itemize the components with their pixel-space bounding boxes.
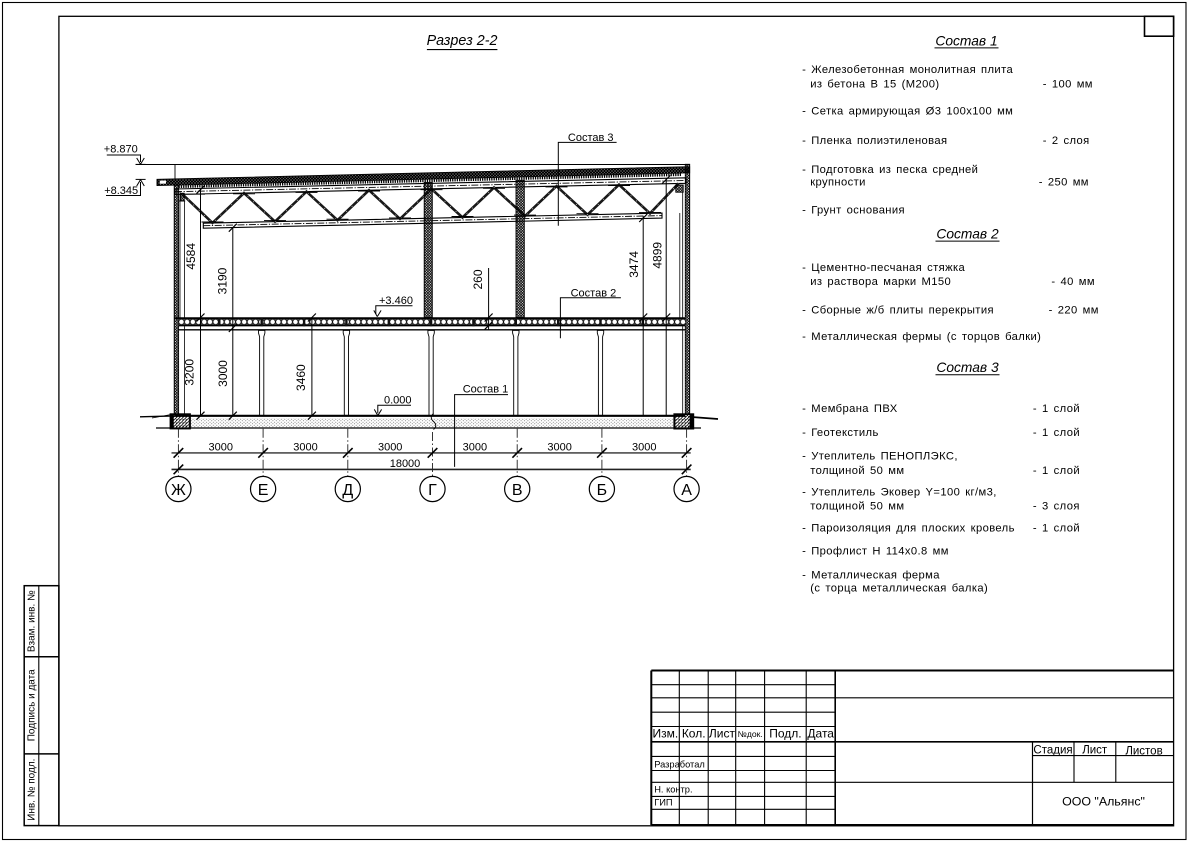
svg-text:- Железобетонная монолитная п: - Железобетонная монолитная плита [802,64,1013,76]
svg-text:- Мембрана ПВХ: - Мембрана ПВХ [802,403,898,415]
svg-text:3190: 3190 [216,267,230,294]
svg-text:- 1 слой: - 1 слой [1033,465,1080,477]
svg-text:№док.: №док. [738,729,763,739]
svg-text:Ж: Ж [171,482,186,499]
svg-text:- 1 слой: - 1 слой [1033,427,1080,439]
svg-text:3000: 3000 [293,441,317,453]
svg-text:- Пароизоляция для плоских кро: - Пароизоляция для плоских кровель [802,523,1015,535]
svg-text:Дата: Дата [807,727,834,741]
svg-text:4584: 4584 [184,243,198,270]
svg-text:Е: Е [258,482,269,499]
svg-text:- Металлическая фермы (с торцо: - Металлическая фермы (с торцов балки) [802,331,1041,343]
svg-text:- Цементно-песчаная стяжка: - Цементно-песчаная стяжка [802,262,965,274]
svg-text:- Профлист Н 114х0.8 мм: - Профлист Н 114х0.8 мм [802,545,949,557]
svg-text:Б: Б [597,482,608,499]
svg-text:3200: 3200 [182,359,196,386]
svg-text:ООО "Альянс": ООО "Альянс" [1062,794,1145,808]
svg-text:- Сборные ж/б плиты перекрытия: - Сборные ж/б плиты перекрытия [802,305,994,317]
svg-text:- Пленка полиэтиленовая: - Пленка полиэтиленовая [802,135,947,147]
svg-text:- Подготовка из песка средней: - Подготовка из песка средней [802,164,978,176]
svg-text:18000: 18000 [390,458,421,470]
svg-text:Состав 2: Состав 2 [936,227,999,242]
svg-text:из раствора марки М150: из раствора марки М150 [810,276,951,288]
svg-text:Состав 1: Состав 1 [935,33,997,48]
svg-text:- 2 слоя: - 2 слоя [1043,135,1090,147]
svg-text:- Металлическая ферма: - Металлическая ферма [802,570,940,582]
svg-text:- 220 мм: - 220 мм [1049,305,1099,317]
svg-text:из бетона В 15 (М200): из бетона В 15 (М200) [810,78,939,90]
svg-text:- Грунт основания: - Грунт основания [802,205,905,217]
svg-text:толщиной 50 мм: толщиной 50 мм [810,501,904,513]
svg-text:- 1 слой: - 1 слой [1033,403,1080,415]
svg-text:3000: 3000 [547,441,571,453]
svg-text:Подпись и дата: Подпись и дата [27,669,38,741]
svg-text:- 3 слоя: - 3 слоя [1033,501,1080,513]
svg-text:Состав 1: Состав 1 [463,384,509,396]
svg-text:- Утеплитель ПЕНОПЛЭКС,: - Утеплитель ПЕНОПЛЭКС, [802,451,958,463]
svg-text:Разработал: Разработал [654,760,705,770]
svg-text:3474: 3474 [627,251,641,278]
svg-text:(с торца металлическая балка): (с торца металлическая балка) [810,582,988,594]
svg-text:Лист: Лист [1082,744,1108,756]
svg-text:Г: Г [428,482,437,499]
svg-text:4899: 4899 [651,242,665,269]
svg-text:3000: 3000 [463,441,487,453]
svg-text:3000: 3000 [216,360,230,387]
svg-text:ГИП: ГИП [654,798,672,808]
svg-text:Кол.: Кол. [682,727,706,741]
svg-text:Н. контр.: Н. контр. [654,785,692,795]
svg-text:- 100 мм: - 100 мм [1043,78,1093,90]
svg-text:Листов: Листов [1125,746,1162,758]
svg-text:Состав 3: Состав 3 [936,360,999,375]
svg-text:3000: 3000 [378,441,402,453]
svg-text:крупности: крупности [810,177,866,189]
svg-text:Взам. инв. №: Взам. инв. № [27,590,38,652]
svg-text:- Сетка армирующая Ø3 100х100: - Сетка армирующая Ø3 100х100 мм [802,106,1013,118]
svg-text:Подл.: Подл. [769,727,801,741]
svg-text:В: В [512,482,523,499]
svg-text:толщиной 50 мм: толщиной 50 мм [810,465,904,477]
svg-text:- 250 мм: - 250 мм [1039,177,1089,189]
svg-text:- Утеплитель Эковер Y=100 кг/м: - Утеплитель Эковер Y=100 кг/м3, [802,486,997,498]
svg-text:Разрез 2-2: Разрез 2-2 [427,33,498,49]
svg-text:Инв. № подл.: Инв. № подл. [27,759,38,821]
svg-text:- Геотекстиль: - Геотекстиль [802,427,879,439]
svg-text:260: 260 [471,269,485,289]
svg-text:3000: 3000 [632,441,656,453]
svg-text:Стадия: Стадия [1033,744,1072,756]
svg-text:+3.460: +3.460 [379,295,413,307]
svg-text:А: А [681,482,692,499]
svg-text:3000: 3000 [209,441,233,453]
svg-text:3460: 3460 [294,364,308,391]
svg-text:Изм.: Изм. [652,727,678,741]
svg-text:Д: Д [342,482,353,499]
svg-text:- 1 слой: - 1 слой [1033,523,1080,535]
svg-text:Лист: Лист [709,727,736,741]
svg-text:+8.870: +8.870 [104,144,138,156]
svg-text:- 40 мм: - 40 мм [1051,276,1095,288]
